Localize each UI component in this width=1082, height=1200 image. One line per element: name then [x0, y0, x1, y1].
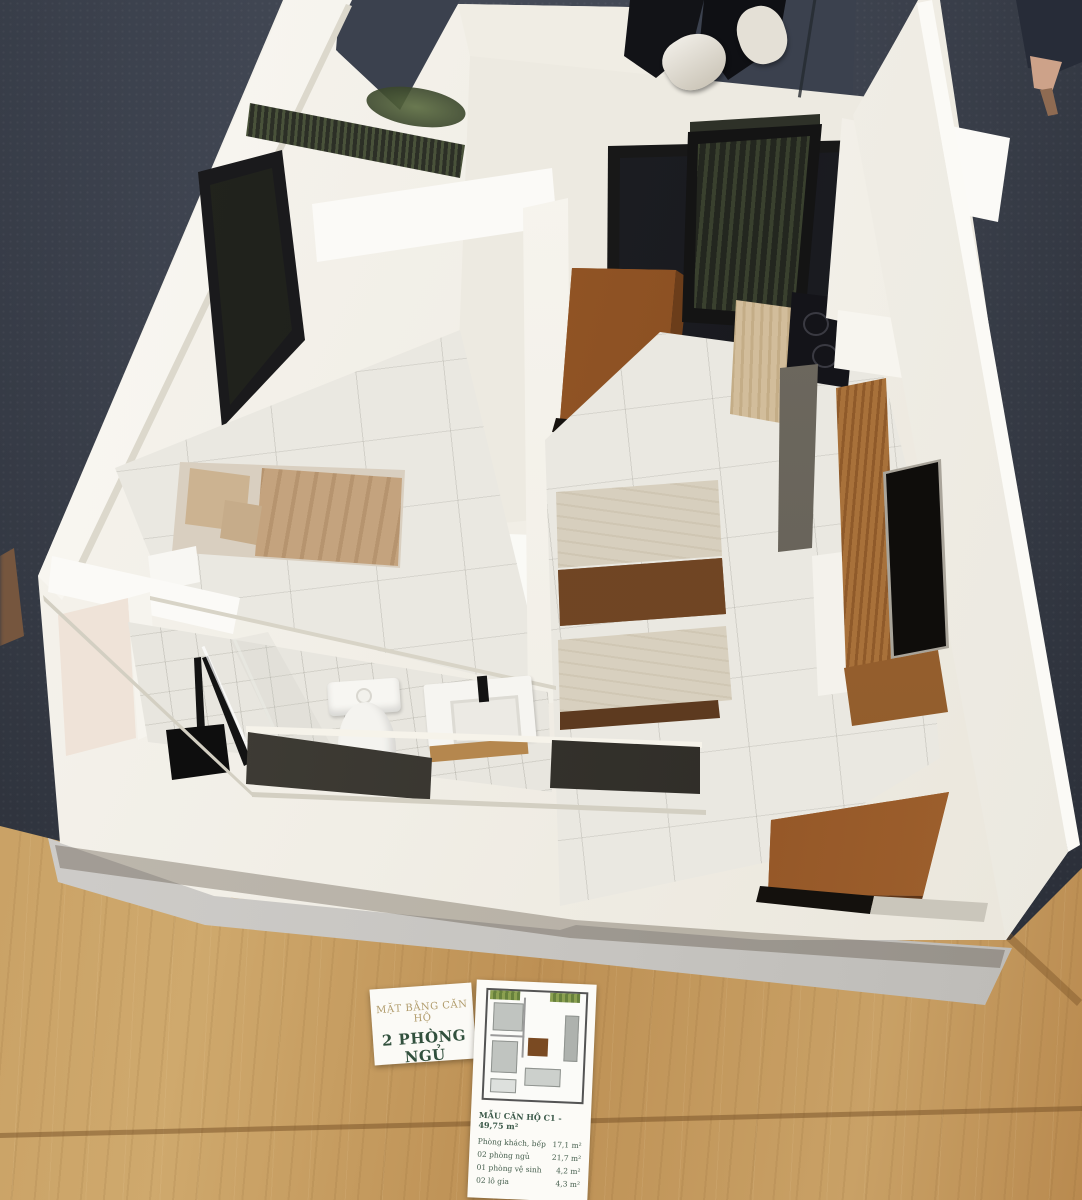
- plan-bathroom: [490, 1078, 517, 1093]
- label-card-title: 2 PHÒNG NGỦ: [372, 1025, 476, 1068]
- spec-row-value: 21,7 m²: [552, 1151, 582, 1165]
- cooktop-burner: [803, 312, 829, 336]
- sink-faucet: [477, 676, 489, 703]
- plan-balcony-green: [490, 990, 520, 1000]
- spec-header: MẪU CĂN HỘ C1 - 49,75 m²: [478, 1110, 583, 1135]
- plan-dining-table: [528, 1038, 549, 1057]
- photo-scene: MẶT BẰNG CĂN HỘ 2 PHÒNG NGỦ MẪU CĂN HỘ C…: [0, 0, 1082, 1200]
- plan-bed: [491, 1040, 518, 1073]
- plan-kitchen-strip: [563, 1015, 579, 1062]
- plan-sofa: [524, 1068, 561, 1088]
- spec-sheet: MẪU CĂN HỘ C1 - 49,75 m² Phòng khách, bế…: [467, 979, 596, 1200]
- label-card: MẶT BẰNG CĂN HỘ 2 PHÒNG NGỦ: [369, 983, 476, 1066]
- mini-floorplan: [482, 988, 589, 1104]
- spec-row-label: 02 lô gia: [476, 1174, 509, 1189]
- plan-balcony-green: [550, 993, 580, 1003]
- plan-wall-line: [490, 1034, 524, 1037]
- label-card-subtitle: MẶT BẰNG CĂN HỘ: [371, 998, 474, 1027]
- spec-text-block: MẪU CĂN HỘ C1 - 49,75 m² Phòng khách, bế…: [476, 1110, 583, 1192]
- spec-row-value: 4,3 m²: [555, 1177, 580, 1191]
- spec-row-value: 17,1 m²: [552, 1138, 582, 1152]
- plan-bed: [493, 1002, 524, 1031]
- spec-row-value: 4,2 m²: [556, 1164, 581, 1178]
